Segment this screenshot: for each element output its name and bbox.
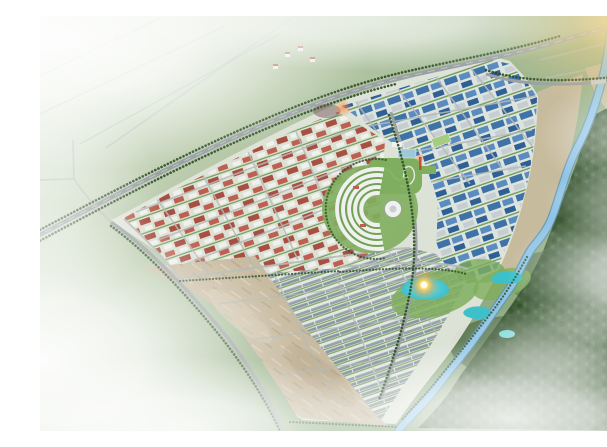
sun-glint-core xyxy=(421,282,428,289)
green-roof-building xyxy=(420,166,436,174)
render-canvas xyxy=(40,16,607,431)
red-landmark-tower xyxy=(419,157,422,170)
masterplan-aerial-render xyxy=(40,16,607,431)
orange-glow xyxy=(334,99,352,117)
plaza-centerpiece xyxy=(390,206,397,213)
